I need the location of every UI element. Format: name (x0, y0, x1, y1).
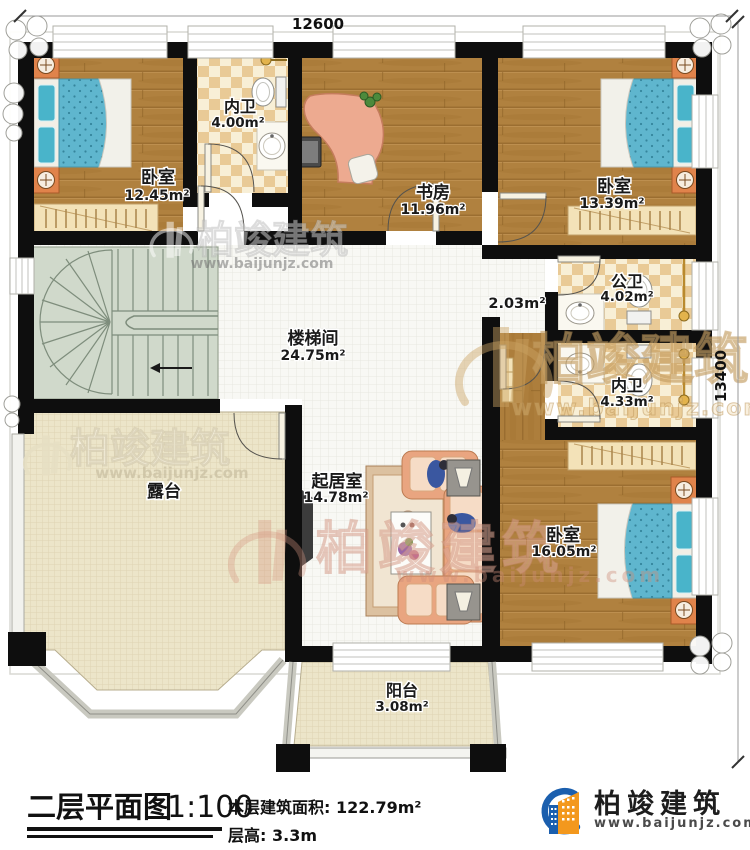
room-area-living: 14.78m² (303, 490, 368, 506)
window (523, 26, 665, 58)
room-label-bath2: 内卫 (611, 376, 643, 395)
watermark-url: www.baijunjz.com (396, 563, 664, 587)
floor-height-line: 层高: 3.3m (228, 822, 317, 846)
title-underline (27, 835, 213, 838)
room-label-terrace: 露台 (147, 481, 181, 502)
window (692, 262, 718, 330)
floor-area-label: 本层建筑面积: (228, 798, 330, 817)
floor-height-value: 3.3m (272, 826, 317, 845)
nightstand-icon (671, 597, 698, 624)
company-logo-icon (536, 780, 590, 842)
wardrobe-icon (34, 204, 158, 233)
room-area-hall-nook: 2.03m² (488, 296, 545, 312)
balcony-column (470, 744, 506, 772)
dimension-label-width: 12600 (292, 15, 344, 33)
floor-height-label: 层高: (228, 826, 266, 845)
room-area-bedroom2: 13.39m² (579, 196, 644, 212)
window (53, 26, 167, 58)
floor-plan-canvas: 柏竣建筑 www.baijunjz.com 柏竣建筑 www.baijunjz.… (0, 0, 750, 772)
window (692, 498, 718, 595)
room-area-study: 11.96m² (400, 202, 465, 218)
quoin-ornament (3, 83, 24, 141)
room-label-stairwell: 楼梯间 (288, 328, 339, 349)
floor-plan-screenshot: 柏竣建筑 www.baijunjz.com 柏竣建筑 www.baijunjz.… (0, 0, 750, 850)
room-area-bath1: 4.00m² (211, 115, 264, 131)
company-logo: 柏竣建筑 www.baijunjz.com (536, 780, 750, 844)
floor-area-line: 本层建筑面积: 122.79m² (228, 794, 421, 818)
double-bed-icon (601, 79, 698, 167)
double-bed-icon (34, 79, 131, 167)
toilet-icon (252, 77, 286, 107)
window (188, 26, 273, 58)
window (692, 95, 718, 168)
room-area-bedroom1: 12.45m² (124, 188, 189, 204)
room-label-study: 书房 (416, 182, 450, 203)
watermark-url: www.baijunjz.com (191, 256, 334, 272)
end-table-icon (447, 460, 480, 496)
window (10, 258, 34, 294)
wardrobe-icon (568, 442, 696, 470)
plan-title: 二层平面图 (27, 784, 172, 826)
window (333, 26, 455, 58)
watermark-url: www.baijunjz.com (95, 464, 248, 482)
room-label-bath1: 内卫 (224, 97, 256, 116)
room-area-public-bath: 4.02m² (600, 289, 653, 305)
window (532, 643, 663, 671)
title-underline (27, 827, 222, 831)
balcony-column (276, 744, 310, 772)
room-label-living: 起居室 (311, 471, 363, 492)
room-area-stairwell: 24.75m² (280, 348, 345, 364)
room-area-bedroom3: 16.05m² (531, 544, 596, 560)
company-website: www.baijunjz.com (594, 816, 750, 831)
sink-icon (558, 294, 604, 332)
title-block: 二层平面图 1:100 本层建筑面积: 122.79m² 层高: 3.3m 柏竣… (0, 772, 750, 850)
room-area-bath2: 4.33m² (600, 394, 653, 410)
window (333, 643, 450, 671)
room-label-bedroom2: 卧室 (597, 176, 631, 197)
room-label-bedroom3: 卧室 (546, 525, 580, 546)
room-label-balcony: 阳台 (386, 681, 418, 700)
dimension-label-height: 13400 (712, 350, 730, 402)
terrace-column (8, 632, 46, 666)
room-label-bedroom1: 卧室 (141, 167, 175, 188)
end-table-icon (447, 584, 480, 620)
floor-area-value: 122.79m² (336, 798, 421, 817)
room-area-balcony: 3.08m² (375, 699, 428, 715)
nightstand-icon (33, 167, 59, 193)
nightstand-icon (672, 167, 698, 193)
